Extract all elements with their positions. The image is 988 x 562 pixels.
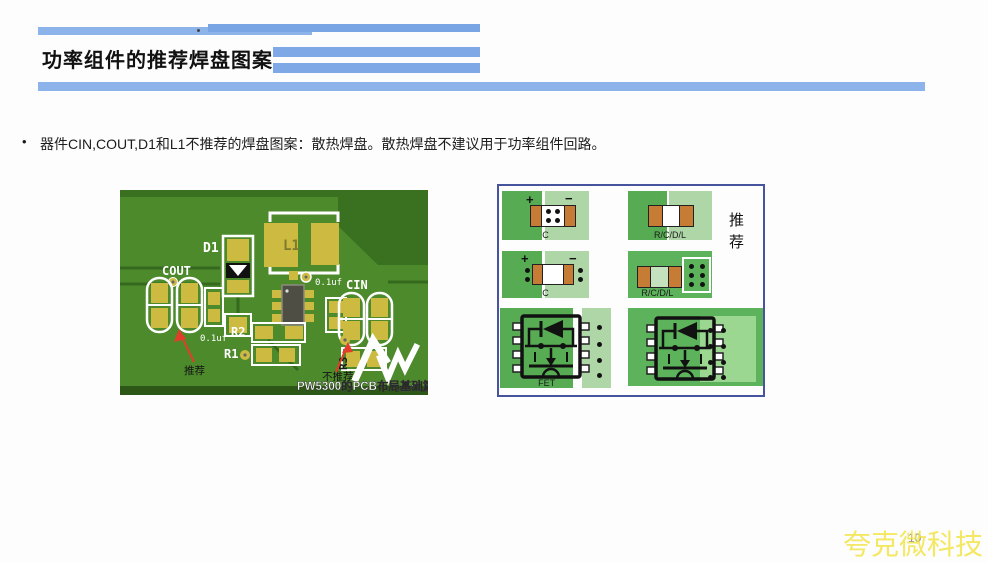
cell-label: C [502, 288, 589, 298]
pad-right [565, 206, 575, 226]
diagram-cell-rcdl-vias-beside: R/C/D/L [628, 251, 712, 298]
cell-label: C [502, 230, 589, 240]
fet-symbol [512, 314, 590, 380]
cell-label: FET [500, 378, 593, 388]
decor-bar-top-right [208, 24, 480, 32]
bullet-text: 器件CIN,COUT,D1和L1不推荐的焊盘图案：散热焊盘。散热焊盘不建议用于功… [40, 134, 605, 154]
cell-label: R/C/D/L [628, 288, 687, 298]
plus-sign: + [521, 252, 529, 265]
diagram-cell-fet-vias-grid [628, 308, 763, 386]
pcb-caption: PW5300的PCB布局基础篇 [297, 379, 428, 393]
r1-label: R1 [224, 347, 238, 361]
bullet-item: • 器件CIN,COUT,D1和L1不推荐的焊盘图案：散热焊盘。散热焊盘不建议用… [22, 134, 782, 154]
chip-component [530, 205, 576, 227]
diagram-cell-cap-vias-beside-pad: + − C [502, 251, 589, 298]
cin-label: CIN [346, 278, 368, 292]
decor-bar-mid-1 [273, 47, 480, 57]
cap-left-label: 0.1uf [200, 334, 227, 344]
decor-bar-mid-2 [273, 63, 480, 73]
d1-label: D1 [203, 241, 219, 256]
diagram-recommended-label: 推荐 [728, 210, 745, 254]
decor-bar-underline [38, 82, 925, 91]
stray-mark [197, 29, 200, 32]
l1-label: L1 [283, 238, 300, 254]
watermark: 夸克微科技 [843, 523, 983, 562]
pad-left [531, 206, 541, 226]
chip-component [637, 266, 682, 288]
diagram-cell-rcdl-separate-pads: R/C/D/L [628, 191, 712, 240]
chip-component [648, 205, 694, 227]
chip-component [532, 264, 574, 285]
pcb-layout-image: L1 D1 COUT [120, 190, 428, 395]
r2-label: R2 [231, 325, 245, 339]
cap-center-label: 0.1uf [315, 278, 342, 288]
minus-sign: − [565, 192, 573, 205]
bullet-marker: • [22, 134, 40, 154]
presentation-slide: 功率组件的推荐焊盘图案 • 器件CIN,COUT,D1和L1不推荐的焊盘图案：散… [0, 0, 988, 562]
diagram-cell-fet-vias-row: FET [500, 308, 611, 388]
fet-symbol [646, 316, 724, 382]
cell-label: R/C/D/L [628, 230, 712, 240]
diagram-cell-cap-vias-in-pad: + − C [502, 191, 589, 240]
pad-pattern-diagram: + − C R/C/D/L 推荐 [497, 184, 765, 397]
cout-label: COUT [162, 264, 191, 278]
page-title: 功率组件的推荐焊盘图案 [42, 44, 273, 73]
pcb-recommended-label: 推荐 [184, 364, 205, 377]
